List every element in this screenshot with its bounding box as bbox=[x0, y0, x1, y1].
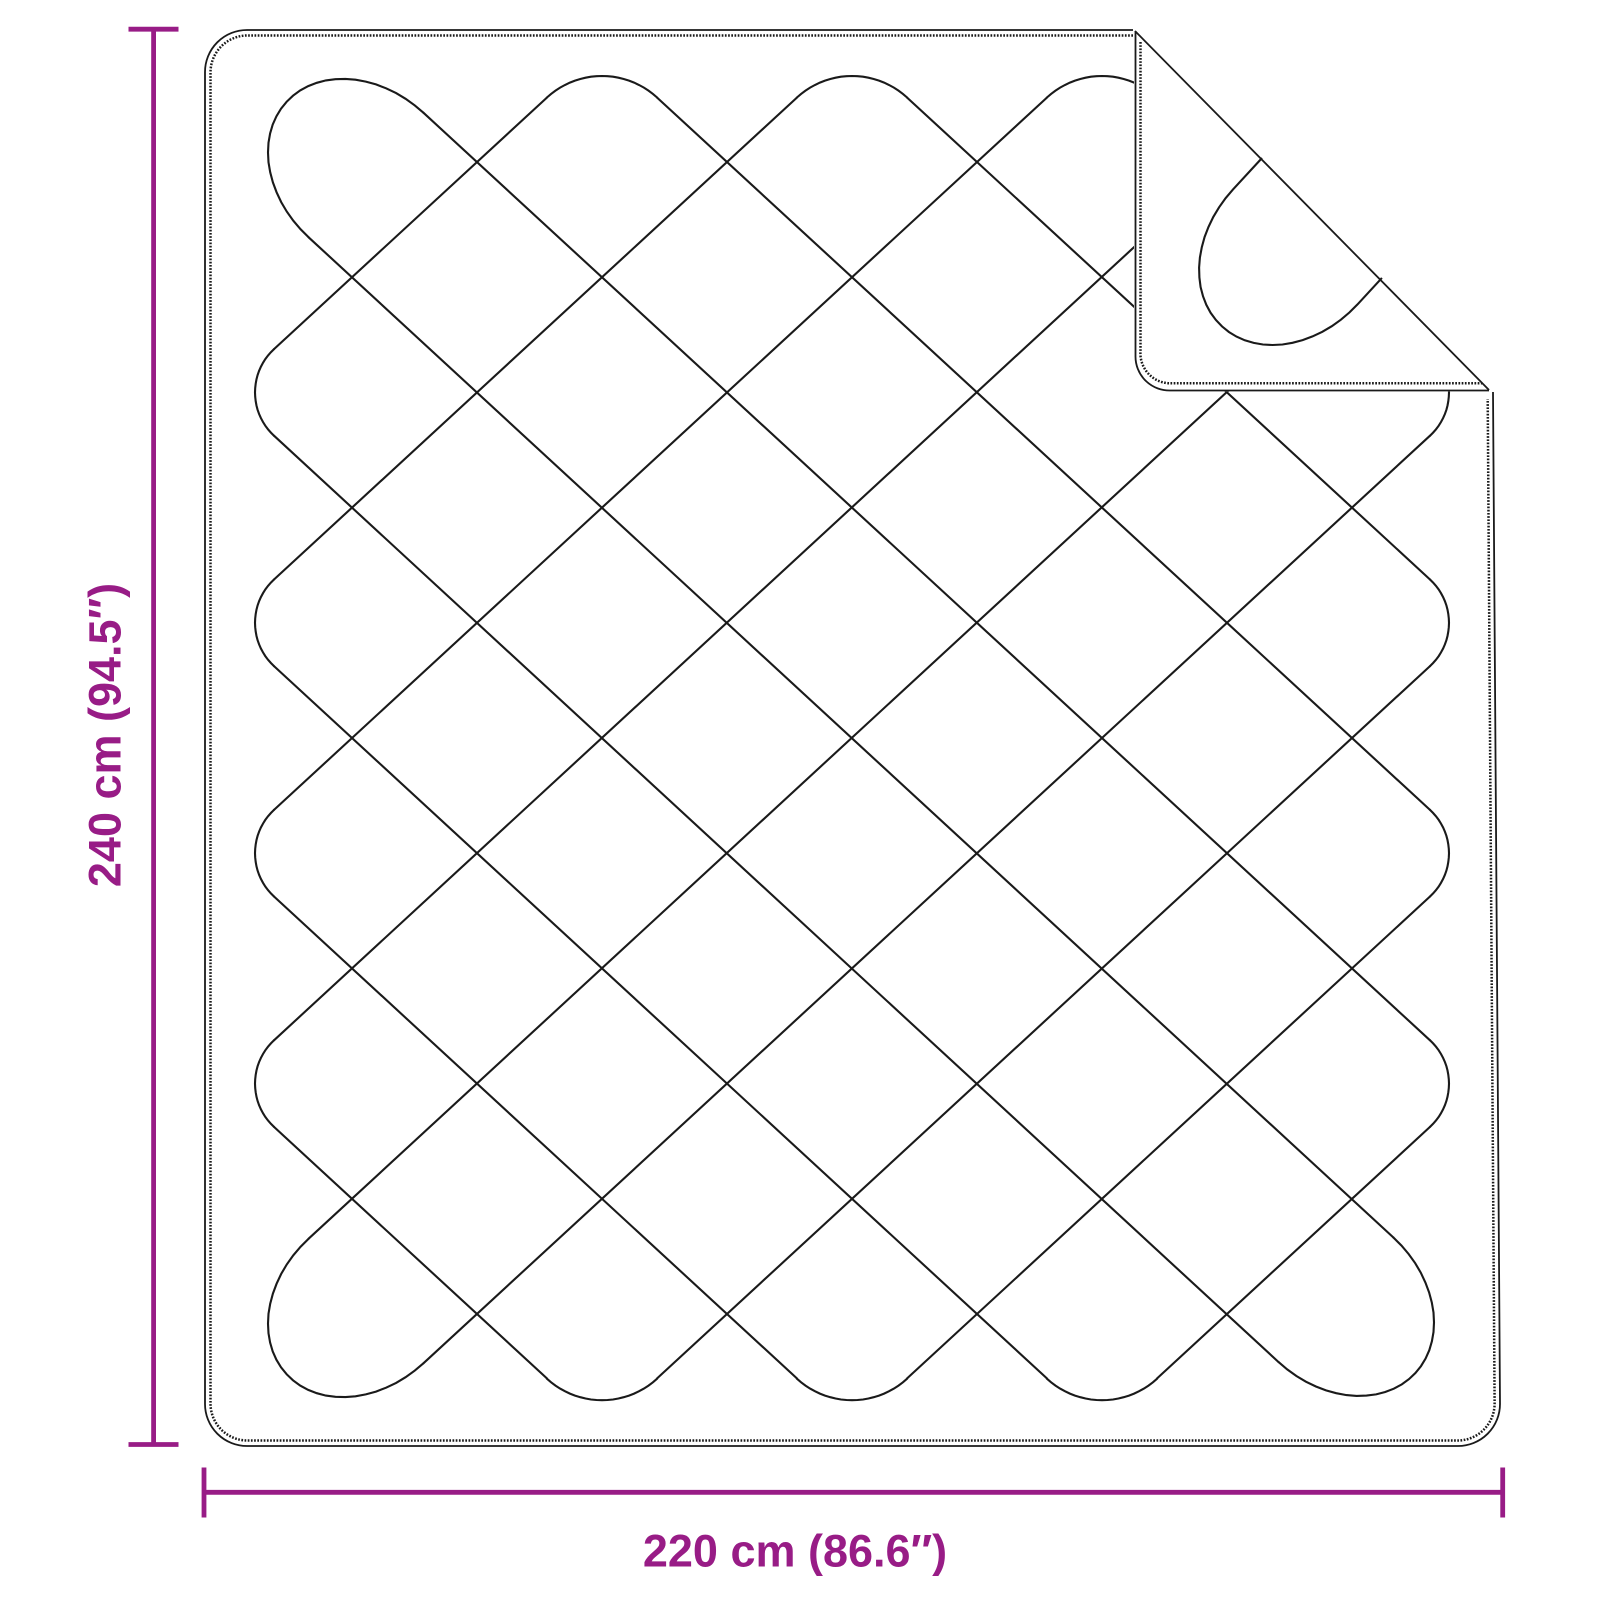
svg-text:240 cm (94.5″): 240 cm (94.5″) bbox=[80, 583, 131, 887]
svg-text:220 cm (86.6″): 220 cm (86.6″) bbox=[643, 1526, 947, 1577]
